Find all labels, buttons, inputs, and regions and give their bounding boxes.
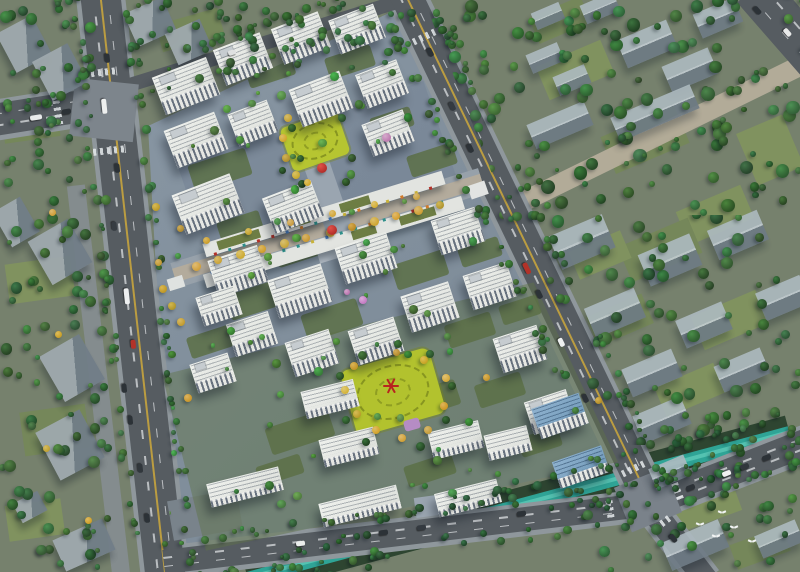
tree	[256, 91, 260, 95]
tree	[614, 106, 627, 119]
tree	[168, 351, 176, 359]
tree	[759, 184, 766, 191]
tree	[537, 213, 545, 221]
autumn-tree	[372, 426, 380, 434]
tree	[214, 0, 223, 6]
tree	[10, 70, 16, 76]
tree	[56, 393, 63, 400]
tree	[45, 168, 50, 173]
tree	[384, 48, 393, 57]
tree	[404, 113, 412, 121]
tree	[363, 531, 371, 539]
tree	[358, 351, 367, 360]
car	[144, 513, 149, 522]
tree	[276, 564, 283, 571]
tree	[699, 477, 703, 481]
autumn-tree	[483, 374, 490, 381]
tree	[159, 306, 164, 311]
tree	[323, 543, 331, 551]
car	[295, 540, 304, 546]
tree	[642, 153, 647, 158]
tree	[657, 540, 664, 547]
tree	[424, 310, 431, 317]
tree	[9, 297, 16, 304]
tree	[192, 22, 200, 30]
tree	[262, 67, 266, 71]
tree	[36, 101, 41, 106]
tree	[227, 327, 235, 335]
tree	[444, 333, 451, 340]
tree	[28, 422, 36, 430]
tree	[581, 55, 589, 63]
tree	[740, 161, 753, 174]
tree	[721, 257, 733, 269]
tree	[250, 527, 255, 532]
tree	[754, 70, 759, 75]
tree	[795, 369, 800, 375]
tree	[336, 539, 342, 545]
tree	[653, 513, 660, 520]
tree	[33, 159, 44, 170]
tree	[333, 338, 340, 345]
bird	[748, 539, 756, 543]
tree	[672, 485, 679, 492]
tree	[390, 246, 397, 253]
tree	[782, 531, 788, 537]
tree	[791, 381, 800, 390]
tree	[539, 334, 545, 340]
tree	[531, 199, 540, 208]
tree	[88, 456, 100, 468]
autumn-tree	[371, 201, 378, 208]
tree	[36, 545, 46, 555]
tree	[246, 143, 250, 147]
autumn-tree	[282, 154, 290, 162]
tree	[603, 391, 613, 401]
tree	[422, 483, 428, 489]
tree	[4, 160, 11, 167]
tree	[462, 66, 469, 73]
tree	[752, 192, 758, 198]
tree	[483, 219, 489, 225]
tree	[625, 423, 632, 430]
autumn-tree	[177, 225, 184, 232]
autumn-tree	[304, 179, 311, 186]
tree	[573, 24, 583, 34]
tree	[646, 440, 655, 449]
tree	[564, 488, 572, 496]
tree	[37, 286, 43, 292]
tree	[268, 261, 272, 265]
tree	[487, 114, 496, 123]
tree	[543, 243, 551, 251]
tree	[347, 170, 355, 178]
tree	[584, 265, 593, 274]
tree	[733, 483, 739, 489]
tree	[83, 100, 88, 105]
tree	[40, 66, 45, 71]
tree	[586, 158, 598, 170]
tree	[7, 499, 18, 510]
tree	[233, 25, 242, 34]
tree	[330, 72, 339, 81]
tree	[751, 74, 761, 84]
tree	[469, 237, 478, 246]
tree	[709, 61, 722, 74]
tree	[80, 229, 91, 240]
tree	[463, 14, 471, 22]
autumn-tree	[177, 318, 185, 326]
tree	[662, 164, 673, 175]
tree	[732, 233, 744, 245]
blossom-tree	[344, 289, 350, 295]
autumn-tree	[280, 239, 289, 248]
tree	[558, 251, 564, 257]
autumn-tree	[392, 212, 400, 220]
tree	[277, 500, 285, 508]
car	[114, 163, 119, 172]
tree	[653, 108, 663, 118]
autumn-tree	[424, 426, 432, 434]
tree	[0, 11, 12, 23]
tree	[763, 515, 772, 524]
tree	[563, 526, 571, 534]
tree	[62, 226, 73, 237]
tree	[321, 2, 326, 7]
tree	[433, 456, 441, 464]
tree	[627, 18, 641, 32]
tree	[675, 434, 682, 441]
tree	[658, 146, 663, 151]
tree	[746, 477, 752, 483]
tree	[691, 0, 704, 13]
autumn-tree	[43, 445, 50, 452]
tree	[443, 511, 448, 516]
tree	[756, 282, 762, 288]
tree	[768, 105, 779, 116]
tree	[370, 555, 374, 559]
tree	[515, 164, 521, 170]
tree	[82, 83, 89, 90]
tree	[637, 419, 642, 424]
tree	[528, 18, 535, 25]
tree	[232, 529, 237, 534]
tree	[109, 358, 115, 364]
tree	[494, 93, 505, 104]
tree	[338, 114, 346, 122]
tree	[150, 31, 154, 35]
autumn-tree	[155, 259, 162, 266]
tree	[349, 209, 355, 215]
tree	[136, 3, 141, 8]
tree	[795, 167, 800, 174]
tree	[259, 334, 265, 340]
tree	[263, 18, 271, 26]
tree	[274, 218, 281, 225]
autumn-tree	[348, 223, 356, 231]
tree	[65, 0, 73, 5]
tree	[293, 492, 302, 501]
tree	[269, 53, 276, 60]
tree	[68, 412, 73, 417]
tree	[85, 22, 96, 33]
tree	[682, 102, 690, 110]
tree	[599, 546, 610, 557]
tree	[677, 522, 685, 530]
tree	[707, 501, 717, 511]
tree	[375, 342, 380, 347]
tree	[456, 40, 464, 48]
tree	[398, 12, 404, 18]
tree	[760, 362, 769, 371]
tree	[26, 13, 37, 24]
tree	[164, 319, 170, 325]
tree	[97, 252, 105, 260]
tree	[654, 308, 664, 318]
tree	[598, 334, 603, 339]
tree	[409, 305, 418, 314]
tree	[117, 406, 124, 413]
tree	[507, 195, 512, 200]
tree	[4, 460, 16, 472]
autumn-tree	[287, 219, 294, 226]
tree	[16, 372, 22, 378]
tree	[306, 38, 313, 45]
tree	[698, 268, 709, 279]
tree	[34, 126, 44, 136]
tree	[478, 11, 487, 20]
tree	[62, 20, 70, 28]
tree	[687, 541, 697, 551]
tree	[750, 383, 761, 394]
autumn-tree	[353, 410, 361, 418]
tree	[171, 450, 177, 456]
tree	[528, 305, 533, 310]
tree	[23, 325, 31, 333]
tree	[463, 61, 467, 65]
tree	[142, 125, 151, 134]
tree	[722, 247, 732, 257]
tree	[641, 93, 654, 106]
tree	[555, 168, 559, 172]
tree	[635, 77, 642, 84]
tree	[90, 393, 101, 404]
tree	[83, 126, 90, 133]
tree	[365, 564, 372, 571]
autumn-tree	[413, 193, 420, 200]
tree	[670, 10, 682, 22]
tree	[746, 330, 752, 336]
tree	[272, 359, 281, 368]
tree	[225, 367, 229, 371]
tree	[216, 68, 222, 74]
tree	[621, 395, 627, 401]
tree	[176, 468, 182, 474]
tree	[580, 84, 592, 96]
tree	[250, 43, 258, 51]
tree	[623, 187, 634, 198]
tree	[247, 24, 254, 31]
tree	[354, 533, 360, 539]
tree	[97, 439, 106, 448]
tree	[722, 491, 729, 498]
tree	[534, 153, 540, 159]
tree	[480, 530, 487, 537]
tree	[40, 322, 49, 331]
tree	[657, 270, 669, 282]
tree	[776, 164, 789, 177]
tree	[342, 178, 350, 186]
tree	[657, 486, 661, 490]
tree	[291, 49, 296, 54]
tree	[72, 271, 83, 282]
autumn-tree	[440, 402, 448, 410]
car	[61, 108, 71, 114]
autumn-tree	[203, 237, 210, 244]
tree	[167, 396, 174, 403]
tree	[362, 438, 370, 446]
tree	[682, 412, 689, 419]
tree	[23, 343, 31, 351]
blossom-tree	[359, 296, 367, 304]
tree	[340, 1, 346, 7]
tree	[763, 501, 773, 511]
tree	[249, 56, 257, 64]
tree	[624, 161, 629, 166]
tree	[49, 196, 59, 206]
tree	[742, 408, 750, 416]
tree	[397, 414, 405, 422]
tree	[171, 406, 175, 410]
tree	[164, 370, 170, 376]
tree	[589, 503, 595, 509]
tree	[385, 554, 390, 559]
tree	[512, 478, 518, 484]
tree	[600, 245, 610, 255]
tree	[707, 475, 715, 483]
tree	[595, 522, 601, 528]
tree	[759, 420, 766, 427]
tree	[74, 156, 82, 164]
tree	[565, 277, 573, 285]
autumn-tree	[329, 210, 336, 217]
tree	[404, 351, 411, 358]
tree	[729, 15, 735, 21]
tree	[254, 532, 259, 537]
tree	[606, 488, 612, 494]
tree	[633, 221, 645, 233]
tree	[506, 488, 512, 494]
tree	[593, 11, 602, 20]
tree	[171, 430, 176, 435]
red-sphere-sculpture	[327, 225, 337, 235]
tree	[265, 481, 274, 490]
tree	[410, 483, 415, 488]
tree	[570, 8, 580, 18]
tree	[90, 184, 96, 190]
tree	[182, 468, 188, 474]
tree	[512, 27, 524, 39]
tree	[291, 185, 299, 193]
tree	[302, 4, 311, 13]
tree	[43, 523, 53, 533]
tree	[606, 498, 612, 504]
tree	[55, 1, 61, 7]
tree	[642, 334, 652, 344]
tree	[596, 501, 603, 508]
tree	[26, 98, 31, 103]
tree	[199, 40, 207, 48]
tree	[436, 447, 441, 452]
tree	[412, 510, 417, 515]
bird	[718, 510, 726, 514]
tree	[32, 69, 41, 78]
tree	[311, 454, 315, 458]
tree	[376, 139, 381, 144]
autumn-tree	[55, 331, 62, 338]
tree	[270, 12, 279, 21]
tree	[321, 356, 325, 360]
tree	[795, 436, 800, 445]
tree	[79, 49, 84, 54]
tree	[277, 91, 285, 99]
red-wire-sculpture	[382, 376, 400, 394]
tree	[539, 141, 549, 151]
tree	[328, 519, 335, 526]
autumn-tree	[436, 201, 444, 209]
tree	[286, 71, 291, 76]
tree	[723, 411, 732, 420]
tree	[248, 340, 253, 345]
tree	[658, 232, 666, 240]
tree	[163, 0, 172, 8]
tree	[552, 215, 565, 228]
tree	[773, 276, 780, 283]
tree	[730, 385, 743, 398]
autumn-tree	[245, 228, 252, 235]
tree	[314, 367, 322, 375]
tree	[563, 51, 572, 60]
tree	[289, 519, 297, 527]
tree	[425, 110, 433, 118]
tree	[128, 46, 134, 52]
tree	[738, 76, 746, 84]
tree	[123, 10, 130, 17]
tree	[336, 372, 344, 380]
tree	[213, 33, 221, 41]
tree	[448, 382, 456, 390]
tree	[606, 268, 619, 281]
bird	[696, 522, 704, 526]
tree	[468, 468, 472, 472]
tree	[775, 338, 782, 345]
tree	[508, 216, 514, 222]
autumn-tree	[258, 245, 266, 253]
tree	[635, 411, 639, 415]
bird	[712, 534, 720, 538]
autumn-tree	[49, 209, 56, 216]
tree	[355, 100, 363, 108]
tree	[383, 269, 389, 275]
car	[101, 98, 107, 113]
tree	[50, 92, 56, 98]
tree	[154, 218, 159, 223]
tree	[687, 330, 700, 343]
tree	[134, 95, 139, 100]
tree	[643, 345, 655, 357]
tree	[34, 219, 44, 229]
tree	[587, 378, 598, 389]
